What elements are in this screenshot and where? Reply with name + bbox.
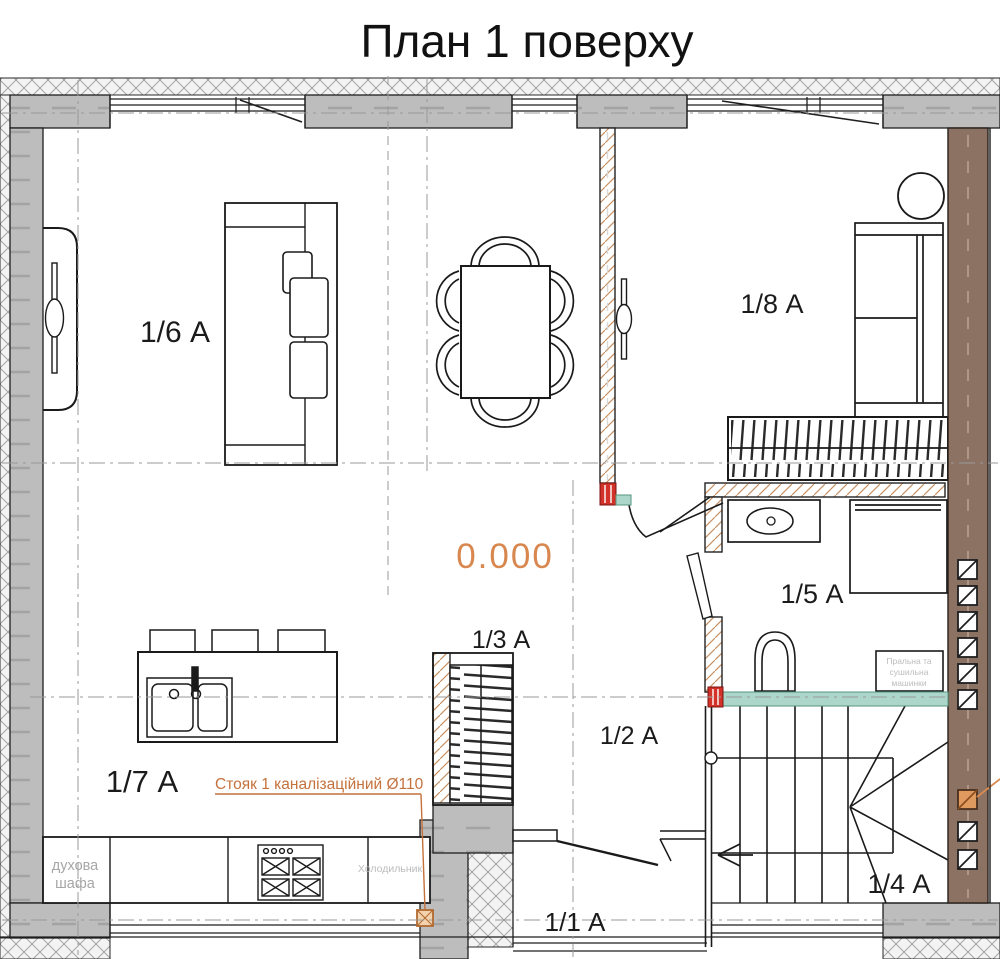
faucet-icon [192, 667, 198, 691]
oven-label-line1: духова [52, 858, 99, 874]
room-label-15: 1/5 А [780, 579, 843, 609]
radiator-icon [46, 299, 64, 337]
washer-label-line1: Пральна та [886, 656, 932, 666]
door-threshold [513, 830, 557, 841]
room-label-14: 1/4 А [867, 869, 930, 899]
floor-plan-canvas: План 1 поверху [0, 0, 1000, 959]
room-label-16: 1/6 А [140, 316, 210, 349]
teal-marker [616, 495, 631, 505]
washer-label-line2: сушильна [890, 667, 929, 677]
room-label-18: 1/8 А [740, 289, 803, 319]
sewer-riser-marker [417, 910, 433, 926]
dining-table [461, 266, 550, 398]
oven-label-line2: шафа [55, 876, 96, 892]
newel-post [705, 752, 717, 764]
shower [850, 500, 947, 593]
room-label-17: 1/7 А [106, 764, 179, 799]
floor-plan-page: План 1 поверху [0, 0, 1000, 959]
riser-label: Стояк 1 каналізаційний Ø110 [215, 776, 424, 793]
room-label-11: 1/1 А [545, 907, 606, 937]
wardrobe-unit [225, 203, 337, 465]
riser-red-marker [600, 483, 616, 505]
side-table [898, 173, 944, 219]
sofa [855, 223, 943, 418]
toilet-icon [755, 632, 795, 691]
room-label-12: 1/2 А [600, 722, 659, 750]
room-label-13: 1/3 А [472, 626, 531, 654]
page-title: План 1 поверху [360, 15, 693, 67]
fridge-label: Холодильник [358, 863, 423, 875]
washer-label-line3: машинки [891, 678, 927, 688]
drain-icon [767, 517, 775, 525]
wardrobe-hanger-rail [728, 417, 948, 480]
teal-channel [723, 692, 948, 706]
level-mark: 0.000 [456, 537, 554, 576]
